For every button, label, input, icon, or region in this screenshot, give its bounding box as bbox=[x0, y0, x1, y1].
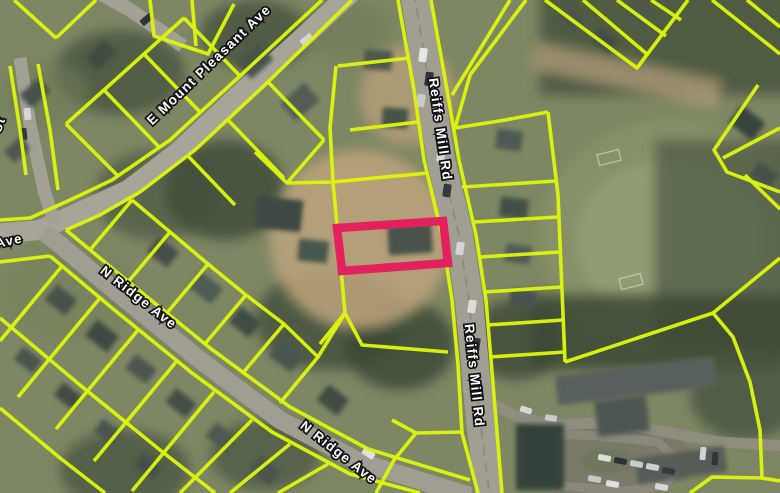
building-roof bbox=[495, 128, 524, 151]
vehicle bbox=[711, 452, 718, 465]
building-roof bbox=[297, 238, 329, 263]
building-roof bbox=[254, 196, 303, 233]
building-roof bbox=[594, 395, 650, 437]
map-viewport[interactable]: Reiffs Mill RdE Mount Pleasant AveN Ridg… bbox=[0, 0, 780, 493]
vehicle bbox=[23, 108, 31, 121]
building-roof bbox=[516, 424, 564, 490]
vehicle bbox=[699, 447, 706, 460]
building-roof bbox=[499, 196, 530, 220]
aerial-map-canvas[interactable]: Reiffs Mill RdE Mount Pleasant AveN Ridg… bbox=[0, 0, 780, 493]
